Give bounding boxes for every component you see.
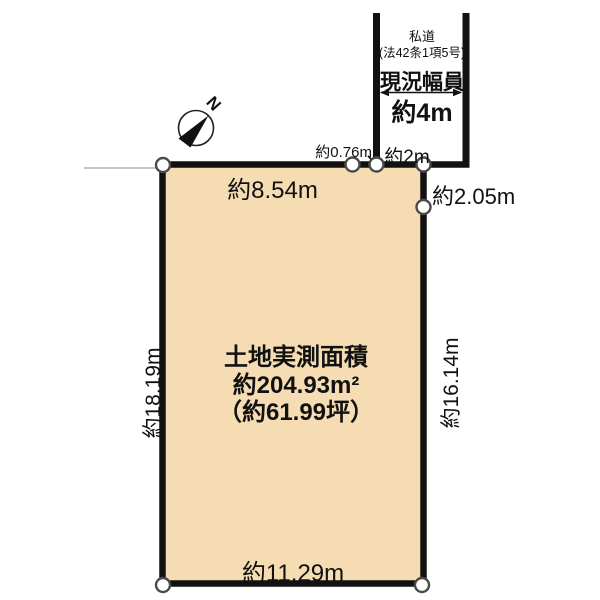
dimension-frontage: 約2m — [383, 142, 431, 169]
marker-top-left — [156, 158, 170, 172]
road-width-title: 現況幅員 — [377, 66, 467, 96]
dimension-right-edge: 約16.14m — [435, 333, 457, 433]
dimension-bottom-edge: 約11.29m — [220, 553, 366, 588]
marker-bottom-right — [415, 578, 429, 592]
parcel-area-text: 土地実測面積 約204.93m² （約61.99坪） — [186, 344, 406, 427]
road-width-value: 約4m — [377, 93, 467, 129]
parcel-area-sqm: 約204.93m² — [186, 372, 406, 400]
parcel-area-tsubo: （約61.99坪） — [186, 399, 406, 427]
marker-bottom-left — [156, 578, 170, 592]
marker-right-upper — [417, 200, 431, 214]
dimension-top-edge: 約8.54m — [200, 170, 345, 205]
dimension-top-gap: 約0.76m — [298, 141, 372, 162]
north-compass-icon — [179, 111, 214, 148]
plot-drawing — [0, 0, 600, 600]
dimension-right-upper: 約2.05m — [432, 179, 515, 211]
parcel-area-title: 土地実測面積 — [186, 344, 406, 372]
land-survey-diagram: N 私道 (法42条1項5号) 現況幅員 約4m 約8.54m 約0.76m 約… — [0, 0, 600, 600]
road-law-ref-label: (法42条1項5号) — [360, 42, 484, 61]
dimension-left-edge: 約18.19m — [137, 343, 159, 443]
